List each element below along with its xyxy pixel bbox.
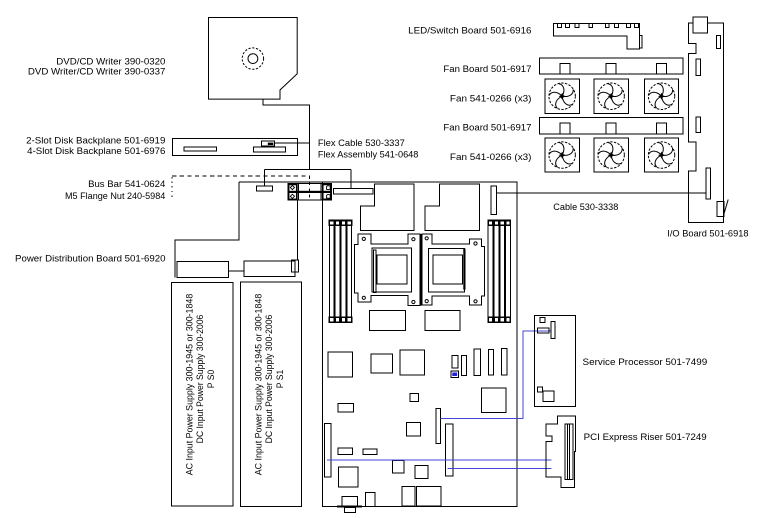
- svg-text:Flex Assembly 541-0648: Flex Assembly 541-0648: [318, 149, 419, 160]
- svg-text:DC Input Power Supply 300-2006: DC Input Power Supply 300-2006: [195, 315, 206, 444]
- svg-text:I/O Board 501-6918: I/O Board 501-6918: [667, 229, 748, 240]
- svg-text:Fan Board 501-6917: Fan Board 501-6917: [443, 64, 531, 75]
- svg-text:DVD Writer/CD Writer 390-0337: DVD Writer/CD Writer 390-0337: [28, 67, 166, 78]
- svg-text:PCI Express Riser 501-7249: PCI Express Riser 501-7249: [584, 432, 707, 443]
- svg-text:M5 Flange Nut 240-5984: M5 Flange Nut 240-5984: [65, 191, 166, 202]
- svg-text:Fan 541-0266 (x3): Fan 541-0266 (x3): [450, 152, 532, 163]
- svg-text:DC Input Power Supply 300-2006: DC Input Power Supply 300-2006: [264, 315, 275, 444]
- svg-text:AC Input Power Supply 300-1945: AC Input Power Supply 300-1945 or 300-18…: [185, 294, 196, 476]
- svg-text:LED/Switch Board 501-6916: LED/Switch Board 501-6916: [408, 26, 531, 37]
- svg-text:4-Slot Disk Backplane 501-6976: 4-Slot Disk Backplane 501-6976: [27, 146, 165, 157]
- svg-text:Bus Bar 541-0624: Bus Bar 541-0624: [88, 179, 166, 190]
- svg-text:Power Distribution Board 501-6: Power Distribution Board 501-6920: [15, 253, 166, 264]
- svg-text:Flex Cable 530-3337: Flex Cable 530-3337: [318, 138, 405, 149]
- svg-text:P S1: P S1: [275, 370, 286, 388]
- svg-text:Cable 530-3338: Cable 530-3338: [553, 202, 618, 213]
- svg-text:Fan Board 501-6917: Fan Board 501-6917: [443, 123, 531, 134]
- svg-text:P S0: P S0: [206, 370, 217, 388]
- svg-text:AC Input Power Supply 300-1945: AC Input Power Supply 300-1945 or 300-18…: [253, 294, 264, 476]
- svg-text:Fan 541-0266 (x3): Fan 541-0266 (x3): [450, 93, 532, 104]
- svg-text:Service Processor 501-7499: Service Processor 501-7499: [583, 357, 708, 368]
